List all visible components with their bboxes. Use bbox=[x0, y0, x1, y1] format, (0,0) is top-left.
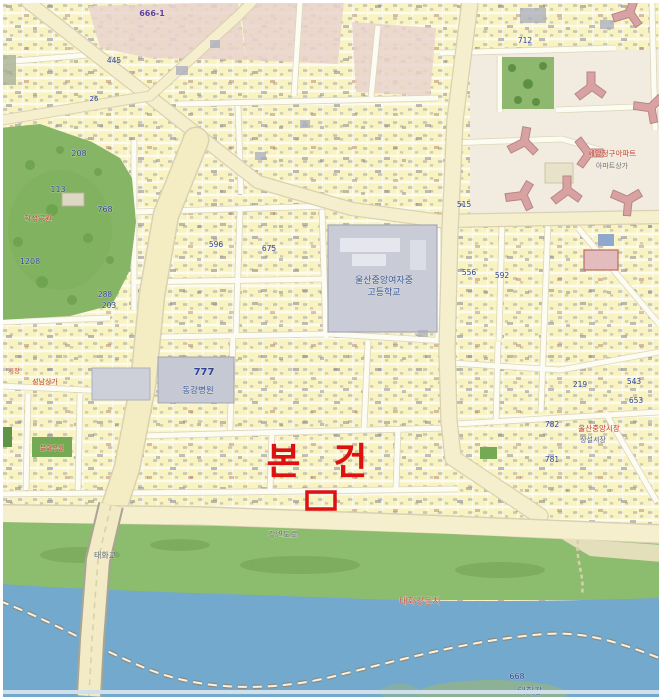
map-label: 675 bbox=[262, 244, 277, 253]
map-label: 문화공원 bbox=[40, 443, 64, 452]
map-label: 777 bbox=[194, 367, 215, 378]
map-label: 태화강둔치 bbox=[399, 595, 440, 607]
map-label: 1208 bbox=[20, 257, 40, 266]
map-label: 781 bbox=[545, 455, 560, 464]
map-label: 712 bbox=[518, 36, 533, 45]
city-map-canvas[interactable]: 본 건 666-144526712208113768학성공원1208288203… bbox=[0, 0, 662, 700]
map-label: 강변도로 bbox=[268, 529, 297, 539]
map-label: 543 bbox=[627, 377, 642, 386]
map-label: 태화교 bbox=[94, 551, 116, 560]
map-label: 아파트상가 bbox=[596, 161, 629, 170]
map-label: 상설시장 bbox=[580, 435, 606, 444]
map-label: 592 bbox=[495, 271, 510, 280]
map-label: 세양청구아파트 bbox=[588, 148, 636, 158]
map-label: 울산중앙여자중 bbox=[355, 274, 413, 286]
map-label: 445 bbox=[107, 56, 122, 65]
map-label: 666-1 bbox=[139, 9, 165, 18]
map-label: 653 bbox=[629, 396, 644, 405]
map-label: 학성공원 bbox=[24, 213, 52, 223]
map-label: 26 bbox=[90, 95, 99, 103]
map-label: 768 bbox=[97, 205, 112, 214]
map-label: 동강병원 bbox=[182, 385, 213, 396]
map-label: 782 bbox=[545, 420, 560, 429]
map-label: 113 bbox=[50, 185, 65, 194]
map-label: 고등학교 bbox=[367, 287, 400, 298]
bottom-edge-strip bbox=[3, 690, 659, 694]
map-label: 208 bbox=[71, 149, 86, 158]
map-label: 556 bbox=[462, 268, 477, 277]
map-label: 219 bbox=[573, 380, 588, 389]
blue-roof-building bbox=[598, 234, 614, 246]
map-label: 울산중앙시장 bbox=[578, 423, 619, 433]
park-building bbox=[62, 193, 84, 206]
map-label: 515 bbox=[457, 200, 472, 209]
market-building bbox=[584, 250, 618, 270]
map-label: 성남상가 bbox=[32, 377, 58, 386]
map-label: 시장 bbox=[8, 366, 20, 375]
map-label: 288 bbox=[98, 290, 113, 299]
subject-property-label: 본 건 bbox=[267, 440, 378, 483]
map-label: 203 bbox=[102, 301, 117, 310]
map-label: 596 bbox=[209, 240, 224, 249]
map-label: 668 bbox=[509, 672, 524, 681]
map-screenshot[interactable]: 본 건 666-144526712208113768학성공원1208288203… bbox=[0, 0, 662, 700]
